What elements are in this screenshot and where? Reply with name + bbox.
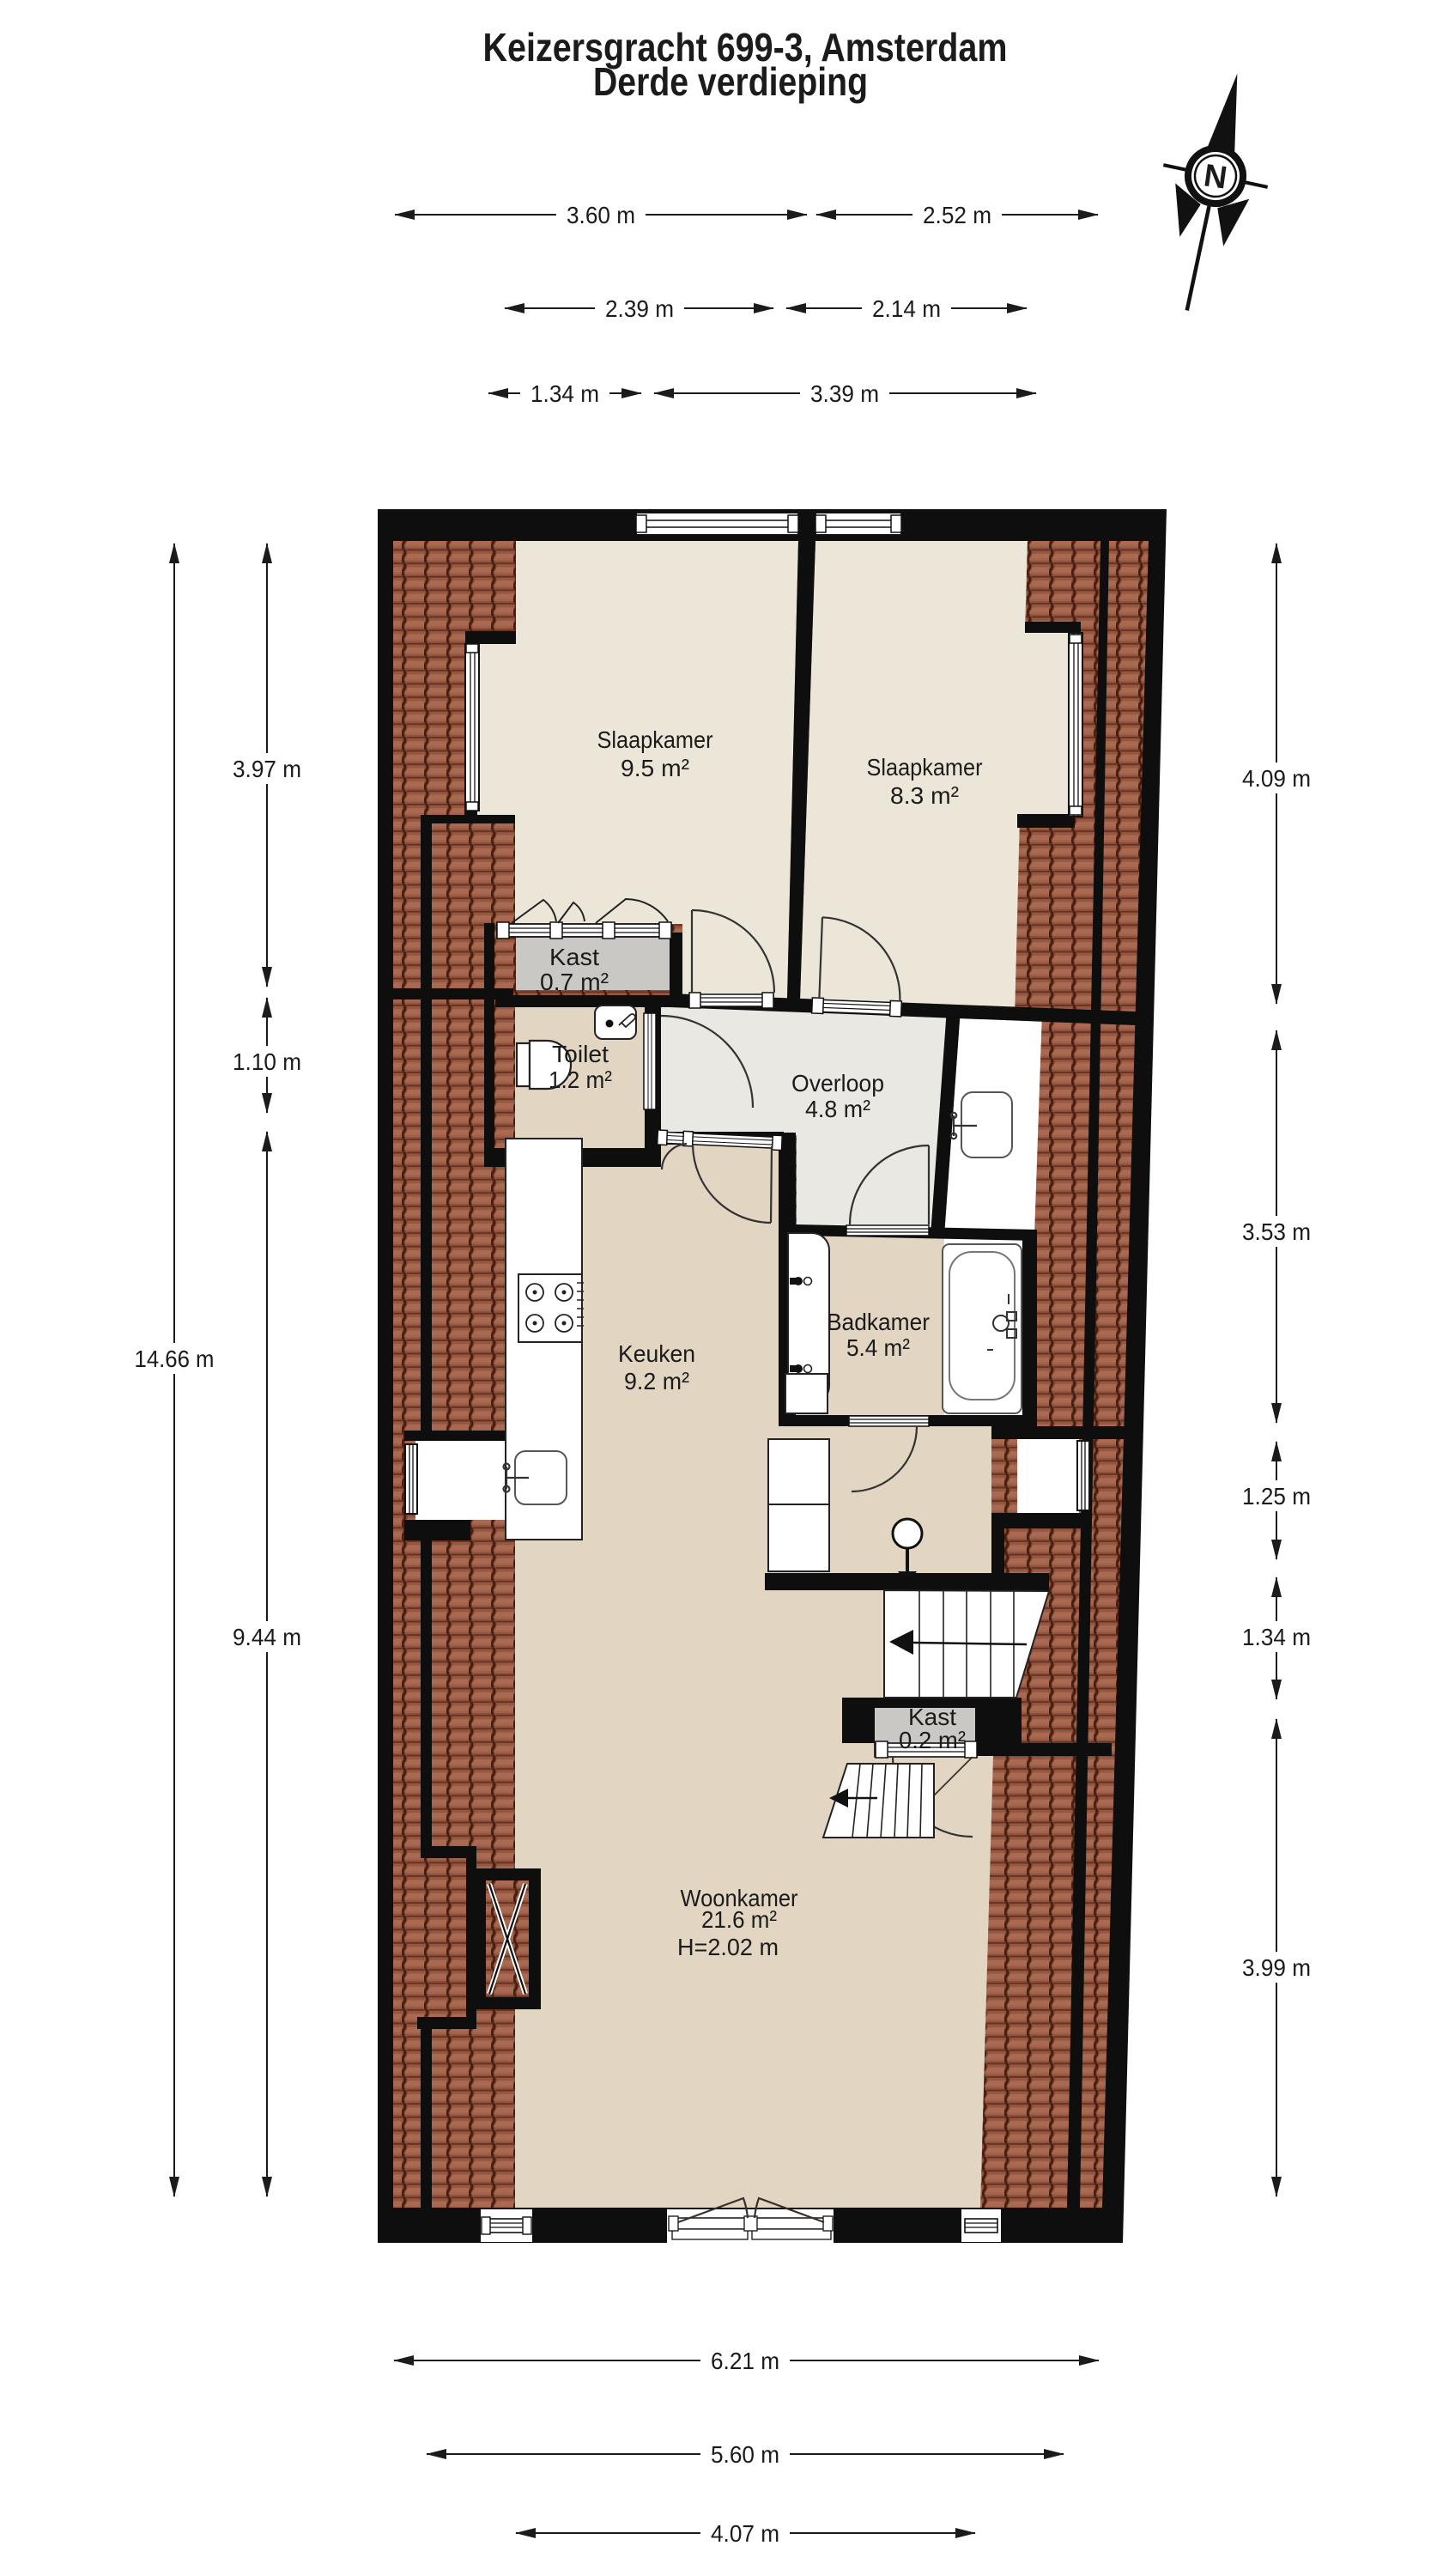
svg-text:N: N bbox=[1202, 157, 1229, 195]
svg-text:2.52 m: 2.52 m bbox=[923, 202, 991, 228]
svg-text:3.97 m: 3.97 m bbox=[233, 756, 301, 782]
svg-text:4.09 m: 4.09 m bbox=[1242, 765, 1311, 792]
svg-text:21.6 m²: 21.6 m² bbox=[701, 1906, 777, 1933]
svg-text:1.34 m: 1.34 m bbox=[530, 380, 599, 407]
svg-text:3.99 m: 3.99 m bbox=[1242, 1954, 1311, 1981]
svg-text:1.34 m: 1.34 m bbox=[1242, 1624, 1311, 1650]
svg-text:1.2 m²: 1.2 m² bbox=[549, 1066, 612, 1093]
svg-text:Slaapkamer: Slaapkamer bbox=[597, 726, 713, 753]
svg-text:3.60 m: 3.60 m bbox=[567, 202, 635, 228]
svg-text:3.53 m: 3.53 m bbox=[1242, 1218, 1311, 1245]
svg-text:14.66 m: 14.66 m bbox=[135, 1346, 215, 1372]
svg-text:Slaapkamer: Slaapkamer bbox=[867, 754, 983, 781]
svg-text:5.60 m: 5.60 m bbox=[711, 2441, 779, 2468]
svg-text:1.10 m: 1.10 m bbox=[233, 1048, 301, 1075]
svg-text:0.2 m²: 0.2 m² bbox=[899, 1727, 966, 1753]
svg-text:9.5 m²: 9.5 m² bbox=[621, 755, 689, 781]
svg-text:9.2 m²: 9.2 m² bbox=[624, 1368, 689, 1394]
svg-text:1.25 m: 1.25 m bbox=[1242, 1483, 1311, 1510]
svg-text:5.4 m²: 5.4 m² bbox=[846, 1334, 910, 1361]
svg-text:H=2.02 m: H=2.02 m bbox=[677, 1934, 779, 1960]
svg-text:2.39 m: 2.39 m bbox=[605, 295, 674, 322]
svg-text:Toilet: Toilet bbox=[552, 1041, 609, 1067]
svg-text:Keuken: Keuken bbox=[618, 1340, 695, 1367]
svg-text:2.14 m: 2.14 m bbox=[872, 295, 941, 322]
svg-text:Kast: Kast bbox=[549, 944, 599, 970]
svg-text:0.7 m²: 0.7 m² bbox=[540, 969, 609, 995]
svg-text:4.8 m²: 4.8 m² bbox=[805, 1096, 870, 1122]
svg-text:6.21 m: 6.21 m bbox=[711, 2348, 779, 2374]
svg-text:Badkamer: Badkamer bbox=[827, 1309, 930, 1335]
svg-text:Derde verdieping: Derde verdieping bbox=[593, 59, 868, 104]
svg-text:4.07 m: 4.07 m bbox=[711, 2520, 779, 2547]
svg-text:9.44 m: 9.44 m bbox=[233, 1624, 301, 1650]
svg-text:Overloop: Overloop bbox=[791, 1070, 884, 1097]
svg-text:8.3 m²: 8.3 m² bbox=[890, 782, 959, 809]
svg-text:3.39 m: 3.39 m bbox=[810, 380, 879, 407]
